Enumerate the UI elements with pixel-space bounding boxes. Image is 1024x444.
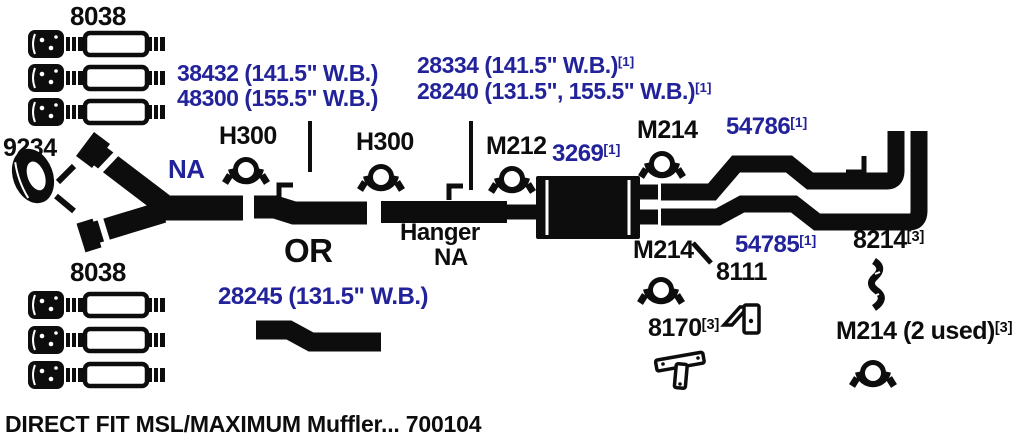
clamp-icon xyxy=(491,169,533,193)
label-38432: 38432 (141.5" W.B.) xyxy=(177,62,378,85)
clamp-icon xyxy=(852,363,894,387)
label-hanger-na: NA xyxy=(434,246,468,270)
hanger-icon xyxy=(360,167,402,191)
label-m214-top: M214 xyxy=(637,118,698,143)
exhaust-parts-diagram: 8038 9234 38432 (141.5" W.B.) 48300 (155… xyxy=(0,0,1024,444)
label-48300: 48300 (155.5" W.B.) xyxy=(177,87,378,110)
intermediate-pipe-icon xyxy=(254,185,367,213)
hanger-icon xyxy=(225,160,267,184)
y-pipe-icon xyxy=(81,144,243,244)
converter-icon xyxy=(28,361,165,389)
converter-icon xyxy=(28,30,165,58)
label-8214: 8214[3] xyxy=(853,228,924,253)
diagram-caption: DIRECT FIT MSL/MAXIMUM Muffler... 700104 xyxy=(5,413,481,436)
converter-icon xyxy=(28,98,165,126)
m214-leader-line xyxy=(693,243,711,263)
label-28245: 28245 (131.5" W.B.) xyxy=(218,285,428,309)
converter-icon xyxy=(28,64,165,92)
label-or: OR xyxy=(284,234,333,267)
clamp-icon xyxy=(641,154,683,178)
label-h300-front: H300 xyxy=(219,124,277,149)
label-8038-bottom: 8038 xyxy=(70,259,126,285)
corner-bracket-icon xyxy=(724,305,759,333)
pipe-28245-icon xyxy=(256,330,381,342)
tailpipe-hanger-hook xyxy=(846,156,864,172)
label-8111: 8111 xyxy=(716,260,767,285)
label-m214-2used: M214 (2 used)[3] xyxy=(836,319,1013,344)
label-8038-top: 8038 xyxy=(70,3,126,29)
label-h300-mid: H300 xyxy=(356,130,414,155)
label-28240: 28240 (131.5", 155.5" W.B.)[1] xyxy=(417,80,711,103)
strap-bracket-icon xyxy=(871,261,881,308)
label-na-blue: NA xyxy=(168,156,205,182)
label-hanger-word: Hanger xyxy=(400,221,480,245)
label-28334: 28334 (141.5" W.B.)[1] xyxy=(417,54,634,77)
label-54786: 54786[1] xyxy=(726,115,807,139)
label-m212: M212 xyxy=(486,134,547,159)
label-3269: 3269[1] xyxy=(552,142,620,166)
gasket-leader-dashes xyxy=(56,166,74,211)
label-m214-bottom: M214 xyxy=(633,238,694,263)
t-bracket-icon xyxy=(655,352,704,388)
label-54785: 54785[1] xyxy=(735,233,816,257)
clamp-icon xyxy=(640,280,682,304)
label-9234: 9234 xyxy=(3,136,57,161)
converter-icon xyxy=(28,326,165,354)
converter-icon xyxy=(28,291,165,319)
label-8170: 8170[3] xyxy=(648,316,719,341)
